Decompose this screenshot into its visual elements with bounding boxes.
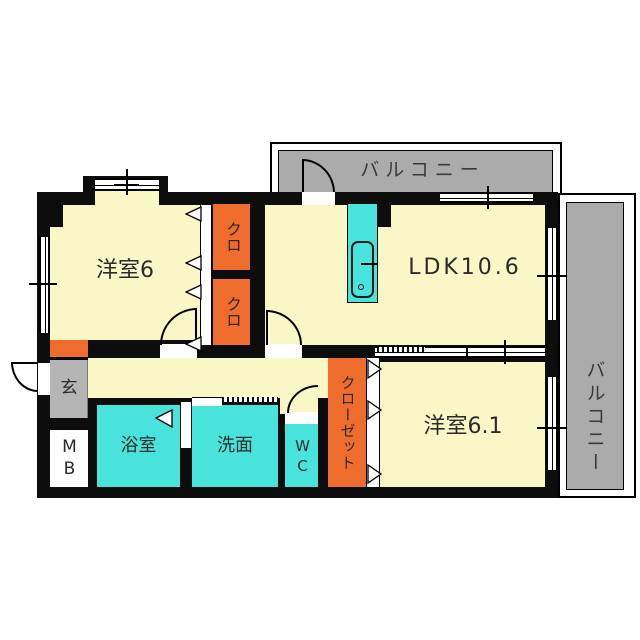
kitchen-drain [358,284,364,290]
bathroom-door-marker-icon [155,409,173,428]
bathroom-door-gap [181,402,191,448]
ldk-right-window-tick [537,275,566,277]
kitchen-wall-stub [378,204,391,227]
slider-hatch [377,347,425,352]
kitchen-faucet [361,263,378,265]
ldk-top-window-tick [487,186,489,209]
room-washroom [192,405,278,487]
closet2-door-marker-icon [367,400,383,420]
bay-window-tick [126,169,128,195]
room-toilet [285,424,318,487]
room-entrance [50,360,88,418]
bedroom1-corner-notch [50,205,63,227]
washroom-slider [192,397,222,406]
toilet-door-gap [285,412,318,424]
balcony-door-gap [302,192,335,205]
closet-door-marker-icon [185,284,202,300]
room-bedroom2 [380,362,545,487]
closet-door-marker-icon [185,255,202,271]
closet-door-marker-icon [185,206,202,222]
closet-door-marker-icon [185,336,202,352]
bedroom1-window-tick [29,283,57,285]
entrance-door-gap [38,363,50,395]
closet2-door-marker-icon [367,464,383,484]
bedroom2-window-tick [537,427,566,429]
room-closet [328,358,366,487]
room-meter-box [50,430,88,487]
balcony-right [566,202,624,490]
entrance-door-arc [11,362,38,392]
bedroom1-window [39,237,50,333]
slider-divider [466,346,468,358]
washroom-slider-hatch [222,397,278,402]
room-closet-lower [213,279,250,345]
closet-doors-strip [200,205,212,345]
hallway [88,358,328,398]
slider-tick [504,340,506,364]
bedroom2-window [546,377,558,470]
closet2-door-marker-icon [367,359,383,379]
ldk-right-window [546,228,558,320]
bay-window-tick2 [114,184,139,186]
floor-plan: バルコニー バルコニー 洋室6 クロ クロ LDK10.6 玄 MB 浴室 洗面 [0,0,640,640]
entrance-step [50,340,88,357]
room-ldk [265,205,545,345]
ldk-door-gap [265,344,302,358]
room-closet-upper [213,204,250,270]
